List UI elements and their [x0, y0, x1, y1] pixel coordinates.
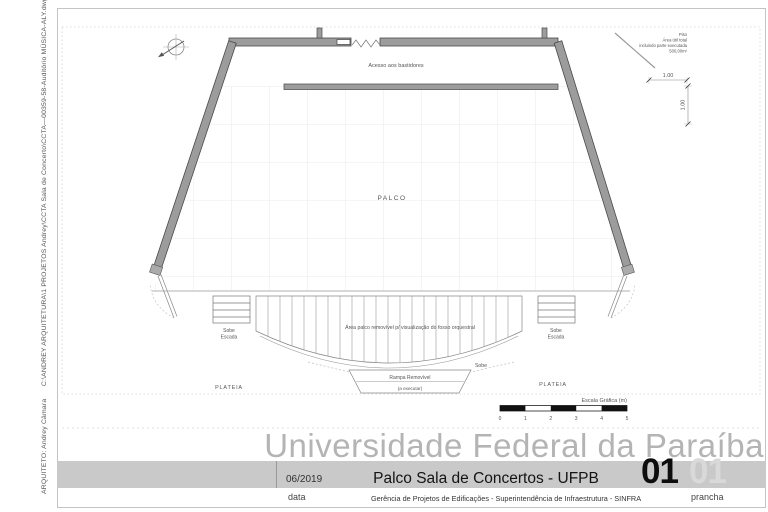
- scale-tick-2: 2: [549, 416, 552, 422]
- right-wall-stub: [615, 33, 655, 68]
- left-stair-label-1: Sobe: [223, 328, 235, 334]
- sheet-date: 06/2019: [286, 474, 322, 485]
- svg-text:500,00m²: 500,00m²: [669, 49, 687, 54]
- ramp-label: Rampa Removível: [389, 375, 430, 381]
- sheet-number: 01: [641, 455, 678, 489]
- stage-grid: [153, 86, 629, 291]
- right-stair-label-2: Escada: [548, 335, 565, 341]
- scale-tick-3: 3: [575, 416, 578, 422]
- right-staircase: [538, 296, 575, 323]
- svg-text:Área útil total: Área útil total: [663, 38, 688, 43]
- stage-label: PALCO: [377, 195, 406, 202]
- wall-break-line: [352, 40, 380, 47]
- wall-stub-left: [317, 28, 322, 38]
- dim-width-label: 1.00: [663, 73, 674, 79]
- wall-stub-right: [542, 28, 547, 38]
- right-stair-label-1: Sobe: [550, 328, 562, 334]
- scale-tick-4: 4: [600, 416, 603, 422]
- sheet-number-ghost: 01: [689, 455, 726, 489]
- audience-left-label: PLATEIA: [215, 385, 243, 391]
- drawing-sheet: 1.00 1.00 Piso Área útil total incluindo…: [0, 0, 768, 512]
- sheet-caption: prancha: [691, 492, 724, 502]
- backstage-wall: [284, 84, 558, 90]
- backstage-access-label: Acesso aos bastidores: [368, 63, 424, 69]
- scale-tick-1: 1: [524, 416, 527, 422]
- top-wall-left: [229, 38, 351, 46]
- left-staircase: [213, 296, 250, 323]
- dim-height-label: 1.00: [681, 100, 687, 111]
- scale-tick-0: 0: [499, 416, 502, 422]
- svg-text:incluindo parte executada: incluindo parte executada: [639, 43, 687, 48]
- pit-area-label: Área palco removível p/ visualização do …: [345, 324, 475, 331]
- date-caption: data: [288, 492, 306, 502]
- audience-right-label: PLATEIA: [539, 382, 567, 388]
- ramp-sublabel: (a executar): [398, 386, 423, 391]
- titleblock-divider: [276, 461, 277, 488]
- compass-north-icon: [158, 34, 189, 60]
- sobe-label: Sobe: [475, 363, 487, 369]
- scale-bar-label: Escala Gráfica (m): [581, 398, 627, 404]
- architect-filepath-note: ARQUITETO: Andrey Câmara C:\ANDREY ARQUI…: [41, 14, 48, 494]
- department-subtitle: Gerência de Projetos de Edificações - Su…: [356, 494, 656, 503]
- svg-text:Piso: Piso: [679, 32, 688, 37]
- left-stair-label-2: Escada: [221, 335, 238, 341]
- area-note: Piso Área útil total incluindo parte exe…: [639, 32, 687, 54]
- scale-tick-5: 5: [626, 416, 629, 422]
- top-wall-door: [337, 40, 350, 45]
- sheet-title: Palco Sala de Concertos - UFPB: [356, 470, 616, 488]
- top-wall-right: [380, 38, 558, 46]
- scale-bar: Escala Gráfica (m) 0 1 2 3 4 5: [499, 398, 629, 422]
